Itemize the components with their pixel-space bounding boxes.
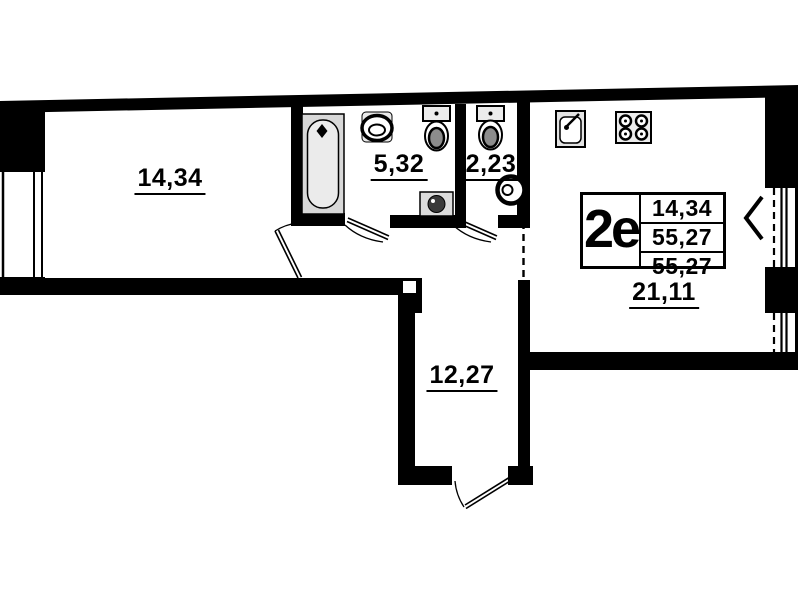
door-entrance bbox=[455, 477, 511, 509]
balcony-chevron-icon bbox=[746, 197, 762, 239]
wall-hall-jamb-right bbox=[508, 466, 533, 485]
wall-bath-bottom-left bbox=[291, 213, 345, 226]
wall-top bbox=[0, 85, 798, 113]
wall-bath-bottom-right bbox=[498, 215, 530, 228]
unit-type-label: 2e bbox=[583, 195, 641, 266]
balcony-door-right bbox=[774, 188, 797, 267]
bathtub-icon bbox=[302, 114, 344, 214]
kitchen-sink-icon bbox=[556, 111, 585, 147]
toilet-icon bbox=[423, 106, 450, 151]
stamp-row: 55,27 bbox=[641, 222, 723, 251]
stove-icon bbox=[616, 112, 651, 143]
door-bathroom bbox=[345, 218, 389, 242]
washbasin-icon bbox=[362, 112, 392, 142]
wall-right-upper bbox=[765, 86, 798, 188]
living-area-label: 21,11 bbox=[629, 280, 699, 309]
stamp-row: 55,27 bbox=[641, 251, 723, 280]
wall-shaft bbox=[403, 281, 416, 293]
wall-hall-right bbox=[518, 280, 530, 470]
hallway-area-label: 12,27 bbox=[426, 363, 497, 392]
bathroom-area-label: 5,32 bbox=[371, 152, 428, 181]
wall-bath-bottom-mid bbox=[390, 215, 462, 228]
wall-left-upper bbox=[0, 101, 45, 172]
wall-bottom-room bbox=[0, 278, 422, 295]
room-area-label: 14,34 bbox=[134, 166, 205, 195]
window-left bbox=[3, 172, 42, 277]
stamp-row: 14,34 bbox=[641, 195, 723, 222]
unit-stamp-values: 14,34 55,27 55,27 bbox=[641, 195, 723, 266]
wall-room-bath bbox=[291, 104, 303, 222]
wc-area-label: 2,23 bbox=[463, 152, 520, 181]
wall-hall-left bbox=[398, 295, 415, 470]
window-right bbox=[774, 313, 797, 352]
toilet-icon bbox=[477, 106, 504, 150]
wall-hall-jamb-left bbox=[398, 466, 452, 485]
wall-right-mid bbox=[765, 267, 798, 313]
door-room bbox=[275, 223, 302, 278]
floor-plan: 14,34 5,32 2,23 12,27 21,11 2e 14,34 55,… bbox=[0, 0, 799, 600]
washing-machine-icon bbox=[420, 192, 453, 216]
unit-stamp: 2e 14,34 55,27 55,27 bbox=[580, 192, 726, 269]
wall-bottom-living bbox=[530, 352, 798, 370]
